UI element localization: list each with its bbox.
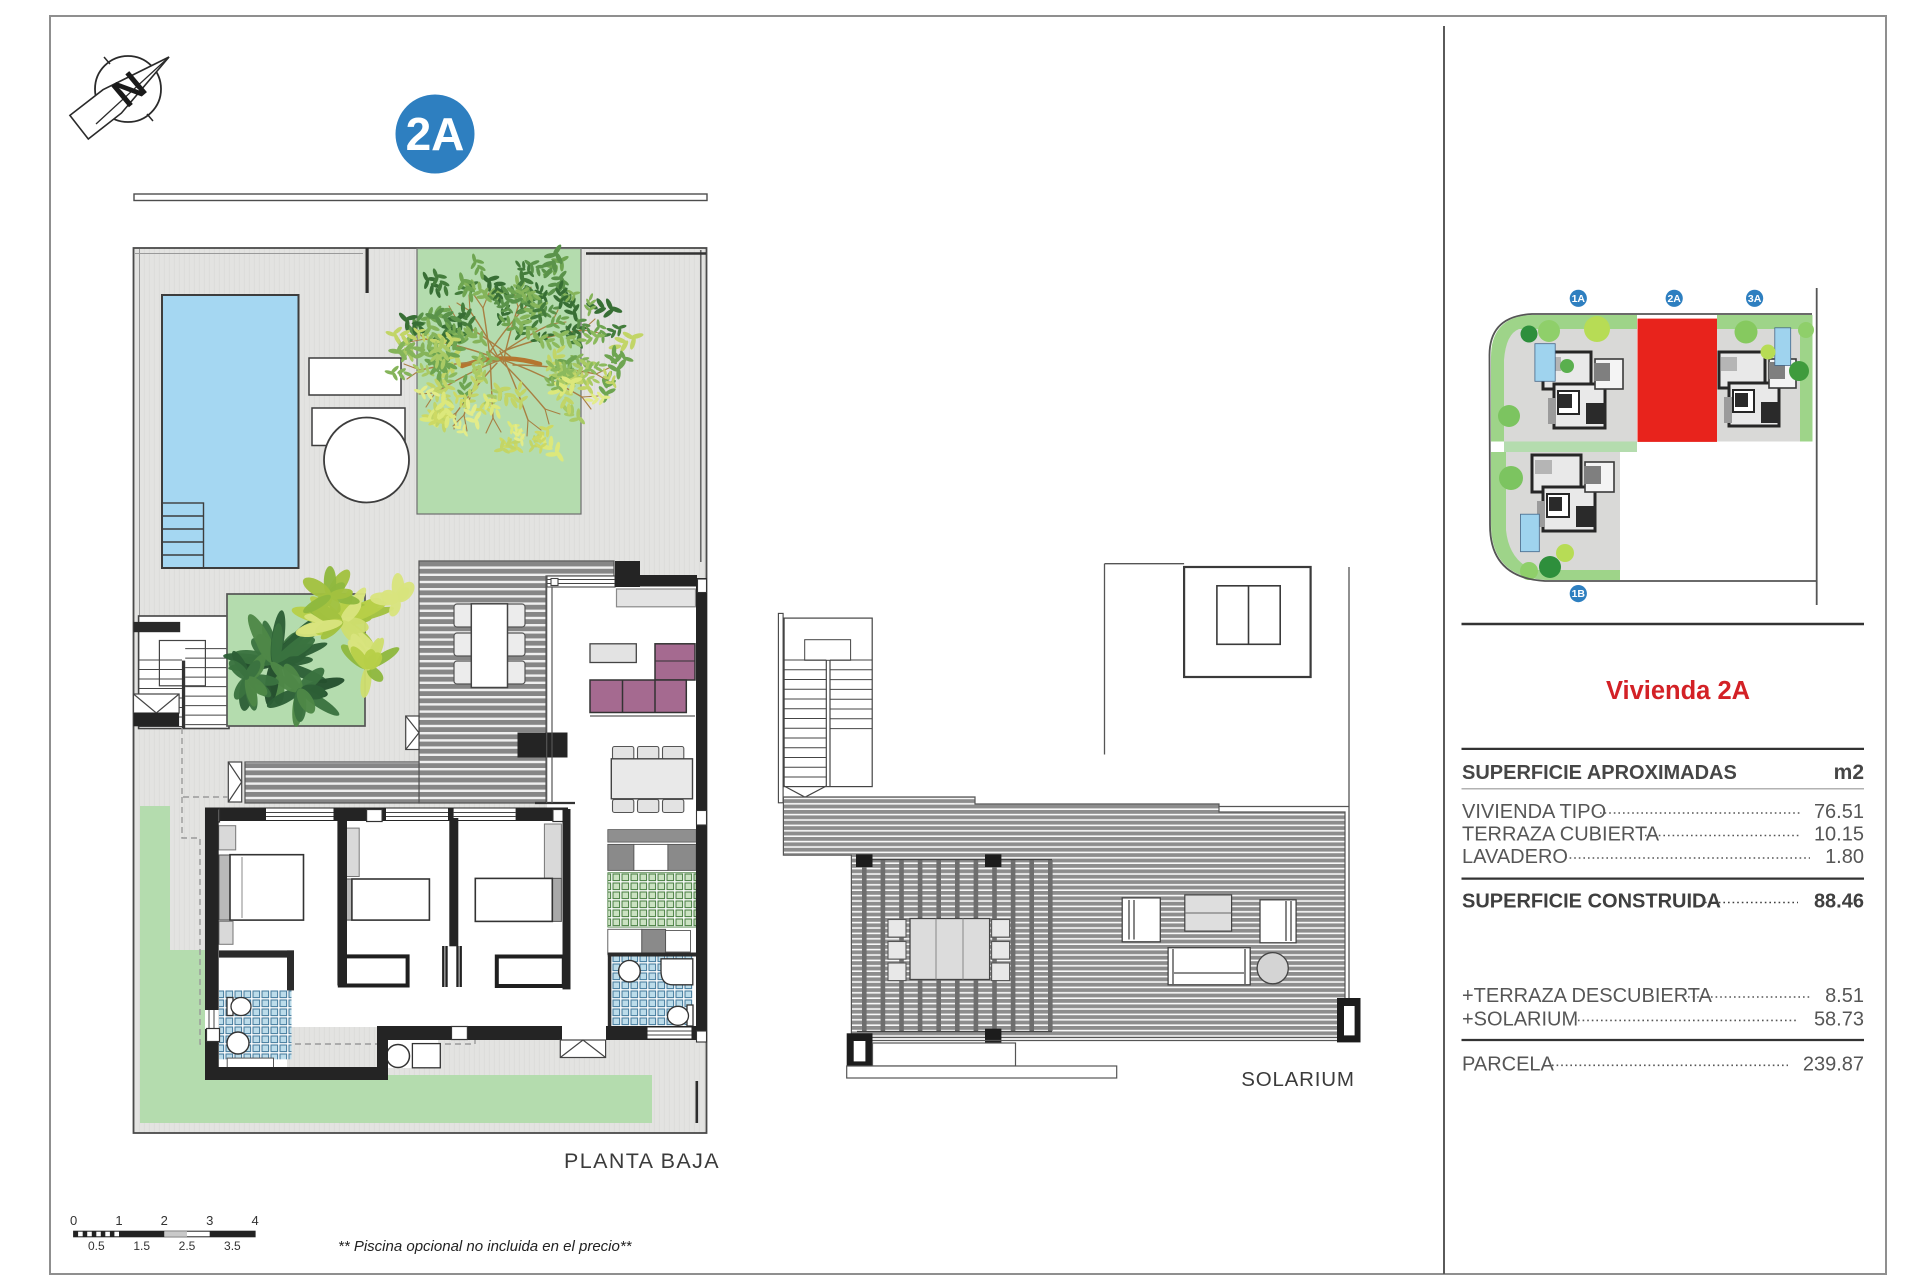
svg-text:1: 1	[115, 1213, 122, 1228]
svg-text:8.51: 8.51	[1825, 985, 1864, 1007]
svg-text:2A: 2A	[1667, 293, 1681, 305]
svg-text:m2: m2	[1834, 761, 1864, 784]
svg-text:2: 2	[161, 1213, 168, 1228]
svg-text:SUPERFICIE APROXIMADAS: SUPERFICIE APROXIMADAS	[1462, 762, 1737, 784]
svg-text:1A: 1A	[1572, 293, 1586, 305]
svg-text:0.5: 0.5	[88, 1239, 105, 1253]
svg-text:LAVADERO: LAVADERO	[1462, 846, 1568, 868]
svg-text:0: 0	[70, 1213, 77, 1228]
svg-text:SUPERFICIE CONSTRUIDA: SUPERFICIE CONSTRUIDA	[1462, 891, 1721, 913]
svg-text:2.5: 2.5	[179, 1239, 196, 1253]
svg-text:1.80: 1.80	[1825, 846, 1864, 868]
svg-text:** Piscina opcional no incluid: ** Piscina opcional no incluida en el pr…	[338, 1238, 633, 1255]
svg-text:+SOLARIUM: +SOLARIUM	[1462, 1008, 1578, 1030]
svg-text:VIVIENDA TIPO: VIVIENDA TIPO	[1462, 801, 1606, 823]
svg-text:2A: 2A	[406, 108, 465, 160]
svg-text:Vivienda 2A: Vivienda 2A	[1606, 677, 1750, 705]
svg-text:+TERRAZA DESCUBIERTA: +TERRAZA DESCUBIERTA	[1462, 985, 1713, 1007]
svg-text:3A: 3A	[1748, 293, 1762, 305]
svg-text:10.15: 10.15	[1814, 824, 1864, 846]
svg-text:PLANTA BAJA: PLANTA BAJA	[564, 1149, 720, 1173]
svg-text:TERRAZA CUBIERTA: TERRAZA CUBIERTA	[1462, 824, 1660, 846]
svg-text:88.46: 88.46	[1814, 891, 1864, 913]
svg-text:3: 3	[206, 1213, 213, 1228]
svg-text:1B: 1B	[1572, 588, 1586, 600]
svg-text:4: 4	[251, 1213, 258, 1228]
svg-text:76.51: 76.51	[1814, 801, 1864, 823]
svg-text:3.5: 3.5	[224, 1239, 241, 1253]
svg-text:239.87: 239.87	[1803, 1053, 1864, 1075]
svg-text:PARCELA: PARCELA	[1462, 1053, 1555, 1075]
svg-text:1.5: 1.5	[133, 1239, 150, 1253]
svg-text:SOLARIUM: SOLARIUM	[1241, 1068, 1354, 1091]
svg-text:58.73: 58.73	[1814, 1008, 1864, 1030]
